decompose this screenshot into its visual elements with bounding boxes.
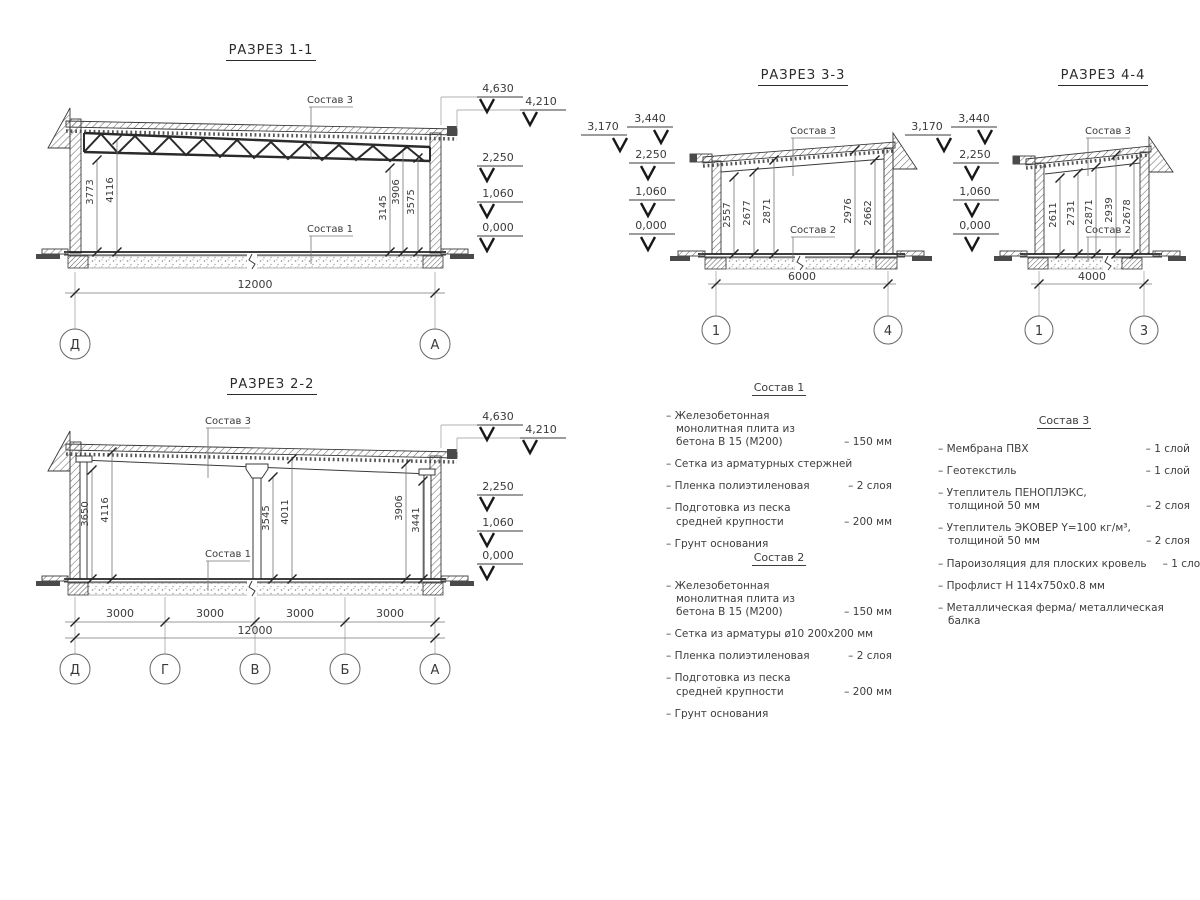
- section-2-2-title: РАЗРЕЗ 2-2: [192, 377, 352, 392]
- material-name: Железобетонная монолитная плита из бетон…: [666, 410, 836, 449]
- elevation-label: 2,250: [635, 148, 667, 161]
- elevation-marks: 3,170 3,440 2,250 1,060 0,000: [905, 112, 999, 250]
- wall-left: [712, 161, 721, 254]
- interior-dimensions: 2611 2731 2871 2939 2678: [1048, 151, 1139, 259]
- width-dim-label: 6000: [788, 270, 816, 283]
- list-item: Сетка из арматурных стержней: [666, 458, 892, 471]
- composition-3-title: Состав 3: [938, 414, 1190, 428]
- material-value: 1 слой: [1147, 558, 1200, 571]
- wall-right: [430, 133, 441, 253]
- dim-label: 2731: [1066, 200, 1077, 225]
- material-name: Подготовка из песка средней крупности: [666, 502, 836, 528]
- elevation-label: 3,440: [958, 112, 990, 125]
- list-item: Профлист Н 114х750х0.8 мм: [938, 580, 1190, 593]
- architectural-sections-sheet: { "sections": { "s11": { "title": "РАЗРЕ…: [0, 0, 1200, 900]
- elevation-label: 1,060: [482, 516, 514, 529]
- leader-label: Состав 3: [205, 416, 251, 427]
- roof-truss: [84, 133, 430, 161]
- columns: [76, 456, 435, 579]
- dim-label: 2939: [1104, 197, 1115, 222]
- elevation-label: 4,210: [525, 95, 557, 108]
- section-3-3-drawing: Состав 3 Состав 2 2557 2677 2871 2976 26…: [581, 112, 932, 344]
- span-dim-label: 3000: [376, 607, 404, 620]
- wall-right: [1140, 152, 1149, 254]
- leader-label: Состав 3: [1085, 126, 1131, 137]
- dim-label: 2871: [1084, 199, 1095, 224]
- material-value: 150 мм: [836, 436, 892, 449]
- roof-slab: [703, 142, 895, 163]
- list-item: Железобетонная монолитная плита из бетон…: [666, 580, 892, 619]
- composition-1-list: Состав 1 Железобетонная монолитная плита…: [666, 381, 892, 560]
- elevation-marks: 4,630 4,210 2,250 1,060 0,000: [441, 82, 566, 251]
- section-2-2-drawing: Состав 3 Состав 1 3650 4116 3545 4011 39…: [36, 410, 566, 684]
- dim-label: 3650: [80, 501, 91, 526]
- grid-label: А: [431, 663, 440, 678]
- material-name: Подготовка из песка средней крупности: [666, 672, 836, 698]
- list-item: Железобетонная монолитная плита из бетон…: [666, 410, 892, 449]
- list-item: Мембрана ПВХ 1 слой: [938, 443, 1190, 456]
- floor-slab: [36, 576, 474, 596]
- material-value: 200 мм: [836, 516, 892, 529]
- bottom-dimension: 4000 1 3: [1025, 270, 1158, 344]
- parapet-right: [893, 133, 917, 169]
- material-name: Железобетонная монолитная плита из бетон…: [666, 580, 836, 619]
- wall-left: [70, 119, 81, 253]
- material-value: 2 слоя: [1138, 535, 1190, 548]
- elevation-marks: 4,630 4,210 2,250 1,060 0,000: [441, 410, 566, 579]
- grid-label: Д: [70, 338, 80, 353]
- span-dim-label: 3000: [286, 607, 314, 620]
- dim-label: 2976: [843, 198, 854, 223]
- list-item: Грунт основания: [666, 538, 892, 551]
- leader-label: Состав 1: [307, 224, 353, 235]
- elevation-label: 0,000: [482, 549, 514, 562]
- material-name: Пленка полиэтиленовая: [666, 650, 840, 663]
- elevation-label: 3,170: [911, 120, 943, 133]
- grid-label: 1: [1035, 324, 1043, 339]
- dim-label: 2678: [1122, 199, 1133, 224]
- list-item: Утеплитель ЭКОВЕР Y=100 кг/м³, толщиной …: [938, 522, 1190, 548]
- grid-label: В: [251, 663, 260, 678]
- dim-label: 2557: [722, 202, 733, 227]
- bottom-dimension: 6000 1 4: [702, 270, 902, 344]
- bottom-dimension: 3000 3000 3000 3000 12000 Д Г В Б А: [60, 597, 450, 684]
- material-value: 2 слоя: [840, 650, 892, 663]
- elevation-label: 2,250: [482, 480, 514, 493]
- roof-slab: [66, 444, 457, 458]
- dim-label: 3906: [394, 495, 405, 520]
- parapet-right: [1149, 137, 1173, 172]
- dim-label: 3441: [411, 507, 422, 532]
- roof-end-cap: [447, 126, 457, 136]
- width-dim-label: 4000: [1078, 270, 1106, 283]
- wall-left: [1035, 163, 1044, 254]
- list-item: Геотекстиль 1 слой: [938, 465, 1190, 478]
- roof-slab: [66, 121, 457, 135]
- material-name: Сетка из арматурных стержней: [666, 458, 884, 471]
- leader-label: Состав 3: [307, 95, 353, 106]
- elevation-label: 0,000: [482, 221, 514, 234]
- parapet-left: [48, 431, 70, 471]
- material-value: 1 слой: [1138, 465, 1190, 478]
- elevation-label: 2,250: [482, 151, 514, 164]
- elevation-label: 3,440: [634, 112, 666, 125]
- grid-label: Г: [161, 663, 169, 678]
- dim-label: 2871: [762, 198, 773, 223]
- bottom-dimension: 12000 Д А: [60, 272, 450, 359]
- width-dim-label: 12000: [238, 624, 273, 637]
- material-name: Мембрана ПВХ: [938, 443, 1138, 456]
- list-item: Пароизоляция для плоских кровель 1 слой: [938, 558, 1190, 571]
- section-1-1-drawing: Состав 3 Состав 1 3773 4116 3145 3906 35…: [36, 82, 566, 359]
- roof-end-cap: [447, 449, 457, 459]
- section-4-4-drawing: Состав 3 Состав 2 2611 2731 2871 2939 26…: [905, 112, 1186, 344]
- elevation-label: 3,170: [587, 120, 619, 133]
- leader-label: Состав 2: [790, 225, 836, 236]
- material-name: Утеплитель ПЕНОПЛЭКС, толщиной 50 мм: [938, 487, 1138, 513]
- material-value: 150 мм: [836, 606, 892, 619]
- grid-label: Б: [341, 663, 350, 678]
- leader-label: Состав 1: [205, 549, 251, 560]
- leader-label: Состав 3: [790, 126, 836, 137]
- material-value: 2 слоя: [1138, 500, 1190, 513]
- dim-label: 4116: [100, 497, 111, 522]
- list-item: Пленка полиэтиленовая 2 слоя: [666, 650, 892, 663]
- dim-label: 2611: [1048, 202, 1059, 227]
- material-name: Пленка полиэтиленовая: [666, 480, 840, 493]
- material-value: 2 слоя: [840, 480, 892, 493]
- material-name: Пароизоляция для плоских кровель: [938, 558, 1147, 571]
- floor-slab: [36, 249, 474, 269]
- dim-label: 3575: [406, 189, 417, 214]
- section-1-1-title: РАЗРЕЗ 1-1: [191, 43, 351, 58]
- composition-3-list: Состав 3 Мембрана ПВХ 1 слой Геотекстиль…: [938, 414, 1190, 637]
- list-item: Подготовка из песка средней крупности 20…: [666, 672, 892, 698]
- material-name: Геотекстиль: [938, 465, 1138, 478]
- elevation-label: 1,060: [635, 185, 667, 198]
- floor-slab: [994, 251, 1186, 270]
- material-value: 1 слой: [1138, 443, 1190, 456]
- elevation-label: 1,060: [959, 185, 991, 198]
- dim-label: 4011: [280, 499, 291, 524]
- list-item: Утеплитель ПЕНОПЛЭКС, толщиной 50 мм 2 с…: [938, 487, 1190, 513]
- material-name: Грунт основания: [666, 708, 884, 721]
- dim-label: 2662: [863, 200, 874, 225]
- dim-label: 3545: [261, 505, 272, 530]
- grid-label: 4: [884, 324, 892, 339]
- dim-label: 3145: [378, 195, 389, 220]
- elevation-marks: 3,170 3,440 2,250 1,060 0,000: [581, 112, 675, 250]
- list-item: Сетка из арматуры ø10 200х200 мм: [666, 628, 892, 641]
- span-dim-label: 3000: [106, 607, 134, 620]
- dim-label: 3906: [391, 179, 402, 204]
- grid-label: 1: [712, 324, 720, 339]
- material-name: Грунт основания: [666, 538, 884, 551]
- list-item: Металлическая ферма/ металлическая балка: [938, 602, 1190, 628]
- composition-1-title: Состав 1: [666, 381, 892, 395]
- material-name: Профлист Н 114х750х0.8 мм: [938, 580, 1182, 593]
- material-name: Утеплитель ЭКОВЕР Y=100 кг/м³, толщиной …: [938, 522, 1138, 548]
- grid-label: 3: [1140, 324, 1148, 339]
- grid-label: Д: [70, 663, 80, 678]
- elevation-label: 4,210: [525, 423, 557, 436]
- width-dim-label: 12000: [238, 278, 273, 291]
- elevation-label: 2,250: [959, 148, 991, 161]
- dim-label: 3773: [85, 179, 96, 204]
- material-name: Металлическая ферма/ металлическая балка: [938, 602, 1182, 628]
- dim-label: 4116: [105, 177, 116, 202]
- elevation-label: 4,630: [482, 82, 514, 95]
- section-3-3-title: РАЗРЕЗ 3-3: [723, 68, 883, 83]
- wall-right: [884, 148, 893, 254]
- composition-2-list: Состав 2 Железобетонная монолитная плита…: [666, 551, 892, 730]
- list-item: Грунт основания: [666, 708, 892, 721]
- grid-label: А: [431, 338, 440, 353]
- floor-slab: [670, 251, 932, 270]
- material-value: 200 мм: [836, 686, 892, 699]
- leader-label: Состав 2: [1085, 225, 1131, 236]
- material-name: Сетка из арматуры ø10 200х200 мм: [666, 628, 884, 641]
- list-item: Подготовка из песка средней крупности 20…: [666, 502, 892, 528]
- elevation-label: 4,630: [482, 410, 514, 423]
- elevation-label: 0,000: [635, 219, 667, 232]
- parapet-left: [48, 108, 70, 148]
- section-4-4-title: РАЗРЕЗ 4-4: [1023, 68, 1183, 83]
- list-item: Пленка полиэтиленовая 2 слоя: [666, 480, 892, 493]
- elevation-label: 1,060: [482, 187, 514, 200]
- dim-label: 2677: [742, 200, 753, 225]
- elevation-label: 0,000: [959, 219, 991, 232]
- span-dim-label: 3000: [196, 607, 224, 620]
- composition-2-title: Состав 2: [666, 551, 892, 565]
